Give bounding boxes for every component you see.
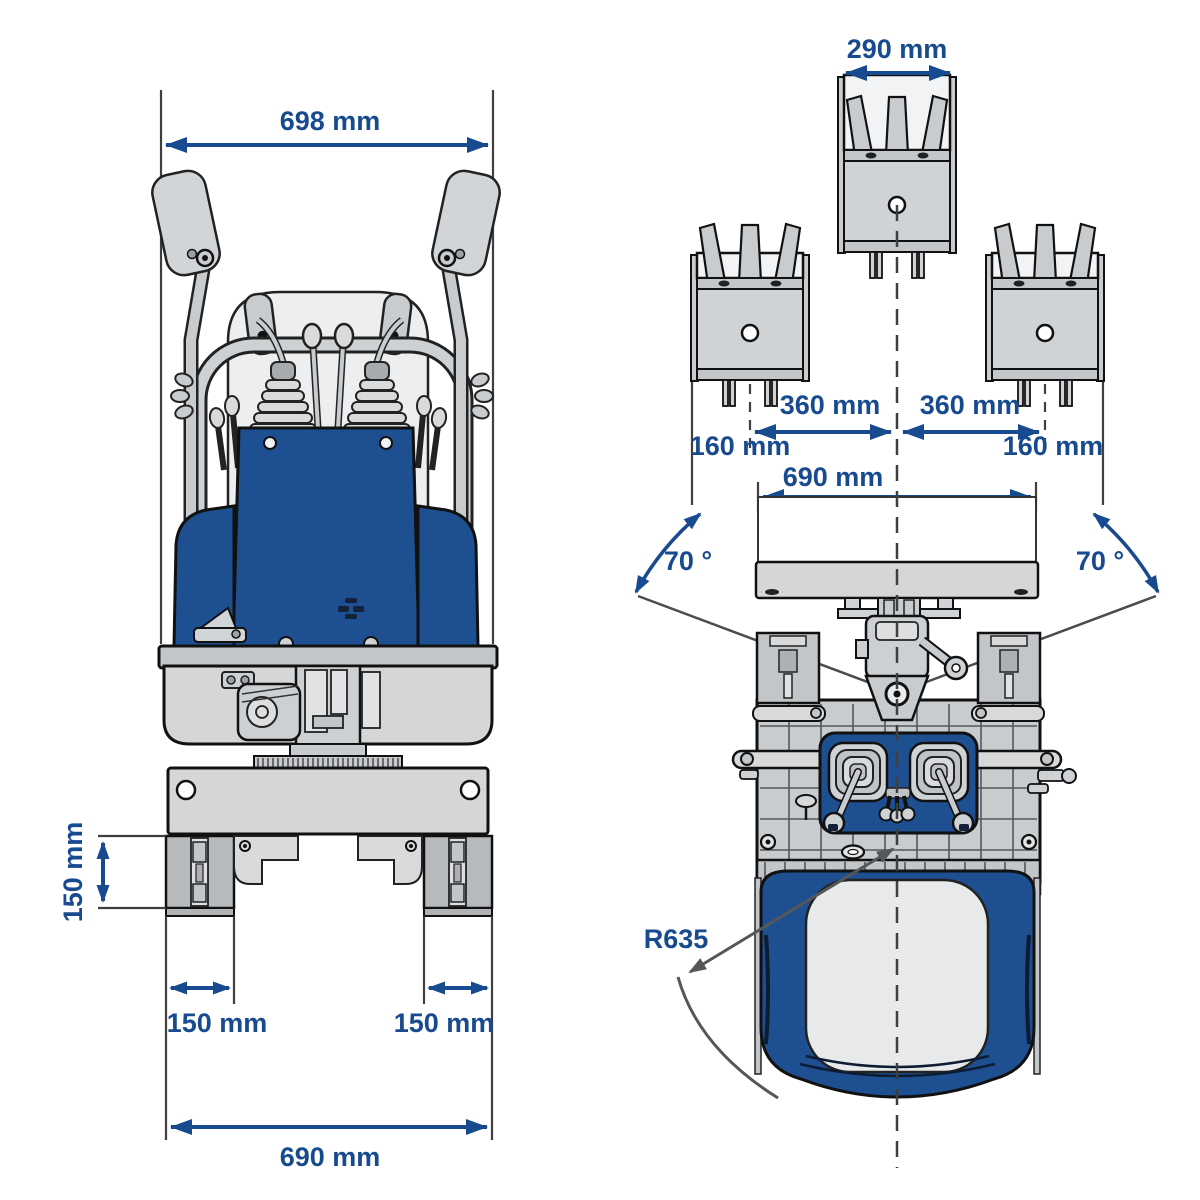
track-left bbox=[166, 836, 298, 916]
dim-front-track-height: 150 mm bbox=[58, 822, 166, 923]
t-handle bbox=[796, 795, 816, 807]
dim-label-track-height: 150 mm bbox=[58, 822, 88, 923]
fender-bolt bbox=[811, 708, 821, 718]
front-view: 698 mm 150 mm 150 mm 150 mm 690 mm bbox=[58, 90, 503, 1172]
chassis bbox=[159, 646, 497, 756]
dim-blade-angle-left: 70 ° bbox=[636, 514, 712, 592]
dim-bucket-width: 290 mm bbox=[846, 34, 950, 73]
dim-label-overall-width-top: 698 mm bbox=[280, 106, 381, 136]
dimension-diagram: 698 mm 150 mm 150 mm 150 mm 690 mm bbox=[0, 0, 1200, 1200]
diagram-canvas: 698 mm 150 mm 150 mm 150 mm 690 mm bbox=[0, 0, 1200, 1200]
dim-label-track-width-right: 150 mm bbox=[394, 1008, 495, 1038]
dim-label-track-width-left: 150 mm bbox=[167, 1008, 268, 1038]
track-top-left bbox=[757, 633, 819, 703]
fender-bolt bbox=[976, 708, 986, 718]
dim-label-blade-width: 690 mm bbox=[783, 462, 884, 492]
dim-label-sideshift-left: 360 mm bbox=[780, 390, 881, 420]
dim-front-overall-width-top: 698 mm bbox=[166, 106, 488, 145]
dim-label-blade-angle-left: 70 ° bbox=[664, 546, 712, 576]
control-console bbox=[820, 733, 977, 833]
top-view: 290 mm 360 mm 360 mm 160 mm 160 mm 690 m… bbox=[636, 34, 1158, 1168]
dim-label-edge-offset-right: 160 mm bbox=[1003, 431, 1104, 461]
dim-label-turning-radius: R635 bbox=[644, 924, 709, 954]
dim-sideshift-right: 360 mm bbox=[903, 390, 1039, 432]
dim-label-edge-offset-left: 160 mm bbox=[690, 431, 791, 461]
bucket-center bbox=[838, 75, 956, 278]
engine-cover bbox=[233, 428, 419, 651]
bucket-right-position bbox=[986, 224, 1104, 406]
dim-front-track-width-right: 150 mm bbox=[394, 988, 495, 1038]
dim-label-overall-width-bottom: 690 mm bbox=[280, 1142, 381, 1172]
dim-label-sideshift-right: 360 mm bbox=[920, 390, 1021, 420]
track-top-right bbox=[978, 633, 1040, 703]
base-plate bbox=[168, 768, 488, 834]
fender-right bbox=[418, 506, 478, 646]
fender-left bbox=[174, 506, 246, 646]
dim-blade-angle-right: 70 ° bbox=[1076, 514, 1158, 592]
dim-front-overall-width-bottom: 690 mm bbox=[171, 1127, 487, 1172]
bucket-left-position bbox=[691, 224, 809, 406]
dim-front-track-width-left: 150 mm bbox=[167, 988, 268, 1038]
track-right bbox=[358, 836, 492, 916]
dim-label-bucket-width: 290 mm bbox=[847, 34, 948, 64]
dim-label-blade-angle-right: 70 ° bbox=[1076, 546, 1124, 576]
